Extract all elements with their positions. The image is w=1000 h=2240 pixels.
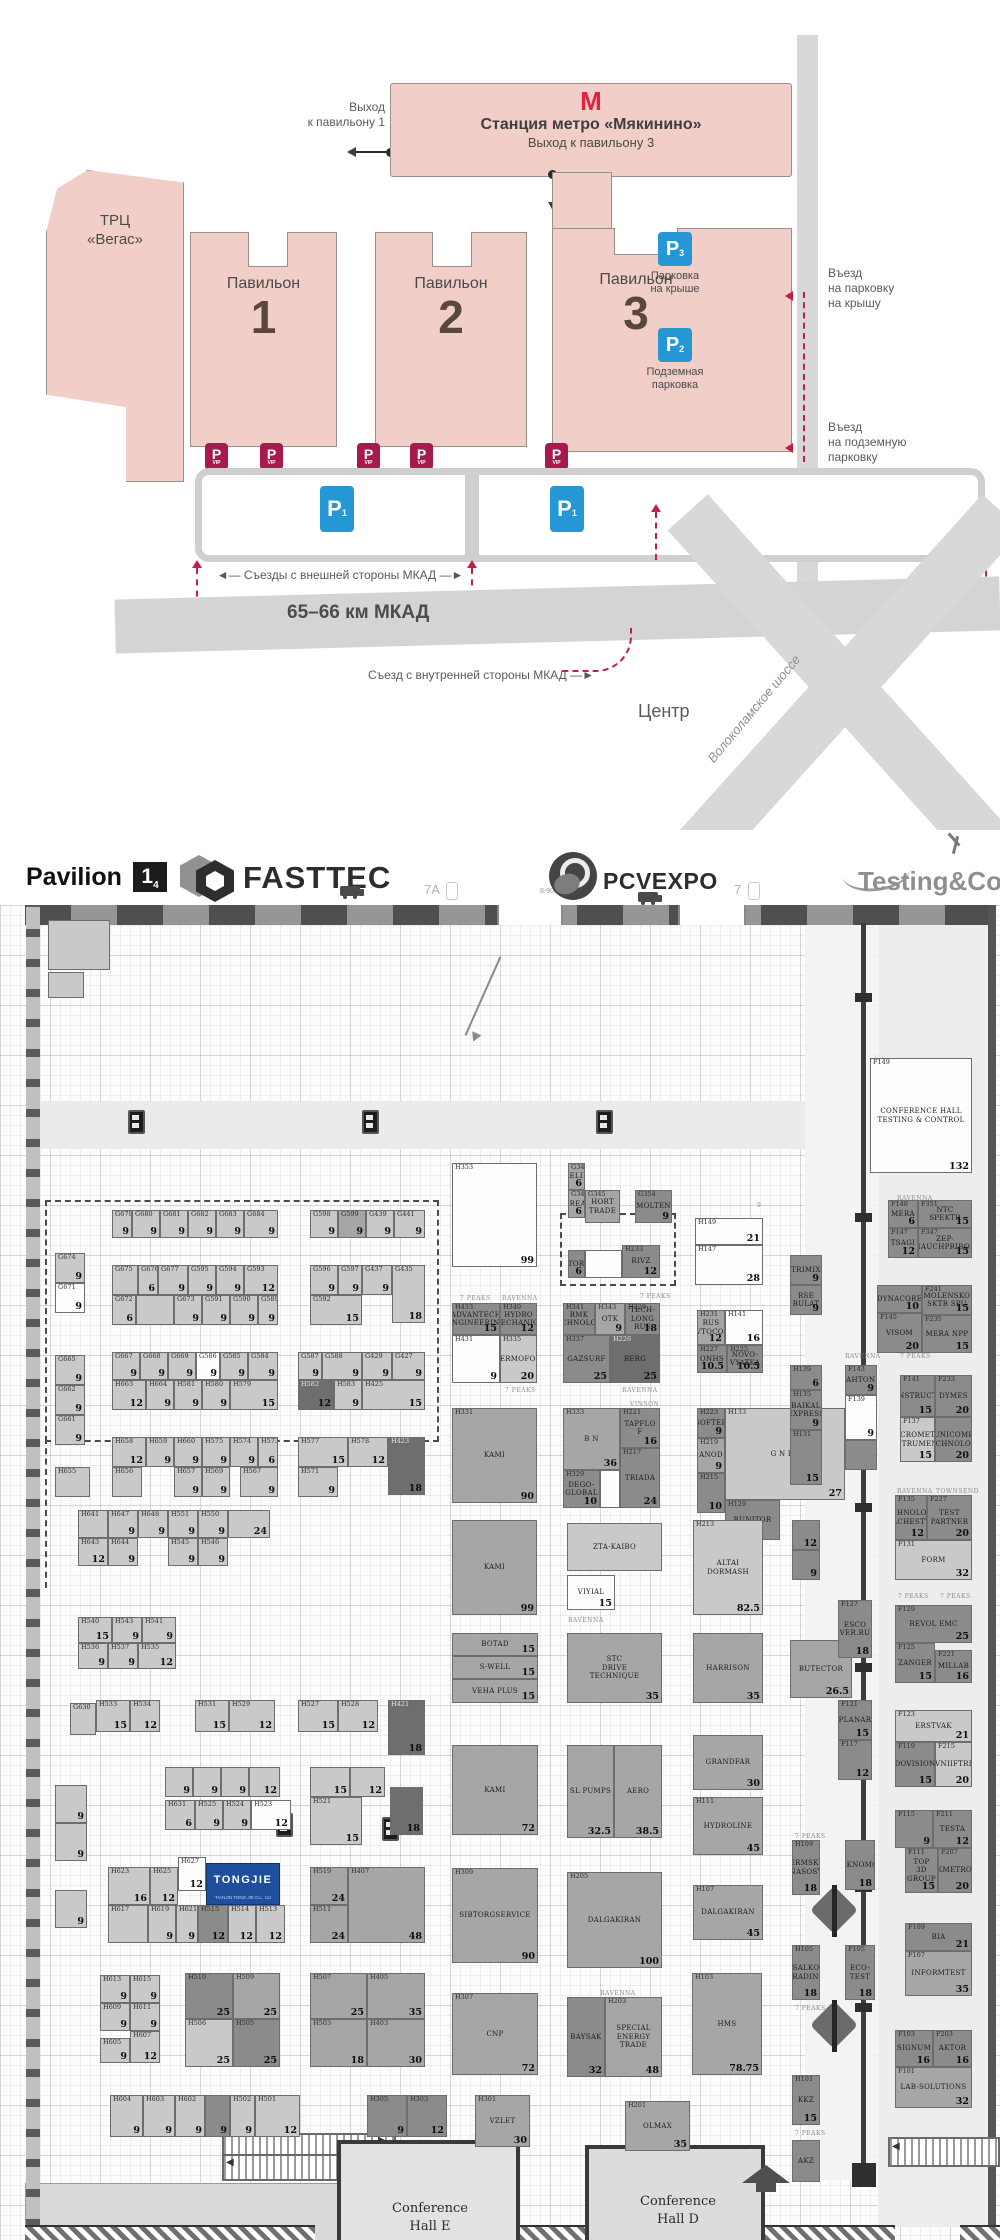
booth: BAYSAK32 [567, 1997, 605, 2077]
booth-H613: H6139 [100, 1975, 130, 2003]
booth-H545: H5459 [168, 1538, 198, 1566]
booth: KAMI72 [452, 1745, 538, 1835]
booth-H423: H42318 [388, 1437, 425, 1495]
ramp-arrow-head [467, 560, 477, 568]
booth-H525: H5259 [195, 1800, 223, 1830]
booth: SL PUMPS32.5 [567, 1745, 614, 1838]
booth: RSE BULAT9 [790, 1285, 822, 1315]
booth-H307: H307CNP72 [452, 1993, 538, 2075]
booth-F139: F1399 [845, 1395, 877, 1440]
inner-exit-curve [560, 628, 632, 672]
gate-opening [497, 905, 563, 925]
zone-dashed-line [45, 1438, 47, 1588]
booth-F137: F137MICROMETRY INSTRUMENTS15 [900, 1417, 935, 1462]
booth-H581: H5819 [174, 1380, 202, 1410]
booth-G591: G5919 [202, 1295, 230, 1325]
aisle-label: 7 PEAKS [898, 1593, 929, 1600]
booth-G669: G6699 [168, 1352, 196, 1380]
booth-G681: G6819 [160, 1210, 188, 1238]
booth-H546: H5469 [198, 1538, 228, 1566]
booth-H623: H62316 [108, 1867, 150, 1905]
pavilion-header-label: Pavilion [26, 863, 122, 892]
booth-H625: H62512 [150, 1867, 178, 1905]
booth-H535: H53512 [138, 1643, 176, 1669]
exit-pavilion1-label: Выход к павильону 1 [255, 100, 385, 130]
booth-G589: G5899 [258, 1295, 278, 1325]
booth-G595: G5959 [188, 1265, 216, 1295]
parking-vip-icon: PVIP [357, 443, 380, 470]
bottom-wall-hatch [25, 2225, 315, 2240]
booth-H540: H54015 [78, 1617, 112, 1643]
booth-F105: F105ECO- TEST18 [845, 1945, 875, 2000]
booth-F125: F125ZANGER15 [895, 1643, 935, 1683]
aisle-label: 7 PEAKS [940, 1593, 971, 1600]
booth-H567: H5679 [240, 1467, 278, 1497]
booth-H341: H341RMK TECHNOLOGY [563, 1303, 595, 1335]
booth-H205: H205DALGAKIRAN100 [567, 1872, 662, 1968]
corridor-node [855, 1213, 872, 1222]
parking-vip-icon: PVIP [205, 443, 228, 470]
booth-F233: F233DYMES20 [935, 1375, 972, 1417]
booth-G630: G630 [70, 1703, 96, 1735]
booth-H223: H223SOFTER9 [697, 1408, 725, 1438]
booth-G682: G6829 [188, 1210, 216, 1238]
booth: UNICOMP TECHNOLOGY20 [935, 1417, 972, 1462]
booth-G672: G6726 [112, 1295, 136, 1325]
booth-H226: H226BERG25 [610, 1335, 660, 1383]
bottom-wall-hatch [520, 2225, 585, 2240]
booth-H403: H40330 [367, 2019, 425, 2067]
booth-F351: F351NTC SPEKTR15 [918, 1200, 972, 1228]
booth-H578: H57812 [348, 1437, 388, 1467]
conference-hall-d-label: Conference Hall D [608, 2193, 748, 2228]
booth-H627: H62712 [178, 1857, 206, 1891]
escalator-icon [832, 1885, 837, 1937]
booth-F127: F127ESCO VER.RU18 [838, 1600, 872, 1658]
inner-exit-label: Съезд с внутренней стороны МКАД —► [368, 668, 594, 683]
aisle-label: 7 PEAKS [795, 1833, 826, 1840]
booth-H534: H53412 [130, 1700, 160, 1732]
ramp-arrow [655, 512, 657, 560]
ramp-arrow-head [192, 560, 202, 568]
booth-H103: H103HMS78.75 [692, 1973, 762, 2075]
booth-H602: H6029 [175, 2095, 205, 2137]
parking-p1-icon: P1 [550, 486, 584, 532]
pavilion-2-notch [432, 232, 472, 267]
entry-underground-arrow-icon [785, 443, 793, 453]
booth-F347: F347ZEP-NAUCHPRIBOR15 [918, 1228, 972, 1258]
booth-F101: F101LAB-SOLUTIONS32 [895, 2067, 972, 2108]
booth-F241: F241SMOLENSKOE SKTB SPU15 [922, 1285, 972, 1315]
booth-G599: G5999 [338, 1210, 366, 1238]
booth-G584: G5849 [248, 1352, 278, 1380]
booth-G665: G6659 [55, 1355, 85, 1385]
booth-H527: H52715 [298, 1700, 338, 1732]
access-map: Выход к павильону 1 М Станция метро «Мяк… [0, 0, 1000, 830]
mkad-label: 65–66 км МКАД [287, 602, 429, 624]
booth-H425: H42515 [362, 1380, 425, 1410]
booth-H433: H433ADVANTECH ENGINEERING15 [452, 1303, 500, 1335]
station-exit-label: Выход к павильону 3 [391, 135, 791, 150]
hall-entry-arrow [742, 2165, 790, 2183]
booth-H656: H656 [112, 1467, 142, 1497]
booth-G592: G59215 [310, 1295, 362, 1325]
booth-H660: H6609 [174, 1437, 202, 1467]
booth-H519: H51924 [310, 1867, 348, 1905]
aisle-label: RAVENNA [897, 1195, 933, 1202]
booth-F149: F149CONFERENCE HALL TESTING & CONTROL132 [870, 1058, 972, 1173]
booth-H514: H51412 [228, 1905, 256, 1943]
booth-H353: H35399 [452, 1163, 537, 1267]
booth-H131: H13115 [790, 1430, 822, 1485]
booth: 9 [55, 1890, 87, 1928]
booth-G596: G5969 [310, 1265, 338, 1295]
booth-H139: H1396 [790, 1365, 822, 1390]
booth-H617: H617 [108, 1905, 148, 1943]
booth-H583: H5839 [334, 1380, 362, 1410]
pavilion-1-number: 1 [191, 293, 336, 341]
aisle-label: 9 [757, 1202, 761, 1209]
booth: 18 [390, 1787, 423, 1835]
booth [136, 1295, 174, 1325]
forklift-icon [596, 1110, 613, 1134]
booth-G668: G6689 [140, 1352, 168, 1380]
booth-G598: G5989 [310, 1210, 338, 1238]
booth-H580: H5809 [202, 1380, 230, 1410]
parking-vip-icon: PVIP [545, 443, 568, 470]
booth-H221: H221TAPFLO F16 [620, 1408, 660, 1448]
booth-H577: H57715 [298, 1437, 348, 1467]
booth-H501: H50112 [255, 2095, 300, 2137]
booth-G677: G6779 [158, 1265, 188, 1295]
booth-G667: G6679 [112, 1352, 140, 1380]
parking-lot-divider [465, 468, 479, 562]
booth-F111: F111TOP 3D GROUP15 [905, 1848, 938, 1893]
booth-G354: G354MOLTEN9 [635, 1190, 672, 1223]
booth-F107: F107INFORMTEST35 [905, 1951, 972, 1996]
booth-G676: G6766 [138, 1265, 158, 1295]
booth-H141: H14116 [725, 1310, 763, 1345]
booth-H225: H225NOVO- VYATKA10.5 [727, 1345, 763, 1373]
booth-H421: H42118 [388, 1700, 425, 1755]
booth: 9 [55, 1823, 87, 1861]
booth-F131: F131FORM32 [895, 1540, 972, 1580]
booth-H575: H5759 [202, 1437, 230, 1467]
booth-G674: G6749 [55, 1253, 85, 1283]
booth-G439: G4399 [366, 1210, 394, 1238]
gate-7a-label: 7A [424, 882, 440, 897]
entry-roof-arrow-icon [785, 291, 793, 301]
booth: AKZ [792, 2140, 820, 2182]
testing-logo-text: Testing&Co [858, 866, 1000, 897]
left-wall [26, 905, 40, 2227]
booth-G435: G43518 [392, 1265, 425, 1323]
booth: STC DRIVE TECHNIQUE35 [567, 1633, 662, 1703]
booth-H509: H50925 [233, 1973, 280, 2019]
corridor-end-node [852, 2163, 876, 2187]
booth-G588: G5889 [322, 1352, 362, 1380]
booth-H550: H5509 [198, 1510, 228, 1538]
forklift-icon [128, 1110, 145, 1134]
booth-H105: H105SALKO TRADING18 [792, 1945, 820, 2000]
booth-H657: H6579 [174, 1467, 202, 1497]
booth-H664: H6649 [146, 1380, 174, 1410]
fasttec-logo-text: FASTTEC [243, 860, 391, 896]
aisle-label: TOWNSEND [936, 1488, 979, 1495]
booth-H511: H51124 [310, 1905, 348, 1943]
booth-H217: H217TRIADA24 [620, 1448, 660, 1508]
booth-H405: H40535 [367, 1973, 425, 2019]
booth-F109: F109BIA21 [905, 1923, 972, 1951]
booth: TONGJIETIANJIN TONG JIE Co., Ltd [206, 1863, 280, 1905]
booth-F227: F227TEST PARTNER20 [927, 1495, 972, 1540]
booth-H607: H60712 [130, 2031, 160, 2063]
conference-hall-e-label: Conference Hall E [360, 2200, 500, 2235]
outer-exits-label: ◄— Съезды с внешней стороны МКАД —► [190, 568, 490, 583]
booth-H521: H52115 [310, 1797, 362, 1845]
booth-H609: H6099 [100, 2003, 130, 2031]
gate-7a-marker [446, 882, 458, 900]
booth-H644: H6449 [108, 1538, 138, 1566]
aisle-label: 7 PEAKS [640, 1293, 671, 1300]
booth-H149: H14921 [695, 1218, 763, 1245]
booth-F121: F121PLANAR15 [838, 1700, 872, 1740]
booth-H135: H135BAIKAL EXPRESS9 [790, 1390, 822, 1430]
station-title: Станция метро «Мякинино» [391, 116, 791, 134]
booth: TEKNOMOR18 [845, 1840, 875, 1890]
booth: ZTA-KAIBO [567, 1523, 662, 1571]
parking-p1-icon: P1 [320, 486, 354, 532]
booth-H213: H213ALTAI DORMASH82.5 [693, 1520, 763, 1615]
booth-H648: H6489 [138, 1510, 168, 1538]
metro-station-box: М Станция метро «Мякинино» Выход к павил… [390, 83, 792, 177]
exit-arrow-line [355, 151, 389, 153]
stairs-arrow: ◀ [226, 2157, 234, 2168]
plan-header: Pavilion 14 FASTTEC 7A 8-900 cm PCVEXPO … [0, 830, 1000, 905]
booth-G429: G4299 [362, 1352, 392, 1380]
booth: TRIMIX9 [790, 1255, 822, 1285]
booth-G593: G59312 [244, 1265, 278, 1295]
booth-H507: H50725 [310, 1973, 367, 2019]
booth [845, 1440, 877, 1470]
booth-G679: G6799 [112, 1210, 132, 1238]
booth-H615: H6159 [130, 1975, 160, 2003]
aisle-label: 7 PEAKS [460, 1295, 491, 1302]
booth-H510: H51025 [185, 1973, 233, 2019]
booth-F123: F123ERSTVAK21 [895, 1710, 972, 1742]
booth-G684: G6849 [244, 1210, 278, 1238]
corridor-node [855, 1663, 872, 1672]
booth-H305: H3059 [367, 2095, 407, 2137]
booth: VEHA PLUS15 [452, 1679, 538, 1703]
booth-G349: G349GELIN6 [568, 1163, 585, 1190]
booth: BOTAD15 [452, 1633, 538, 1656]
booth: S-WELL15 [452, 1656, 538, 1679]
booth-H349: H349HYDRO MECHANICS12 [500, 1303, 537, 1335]
ramp-arrow-head [651, 504, 661, 512]
booth-H582: H58212 [298, 1380, 334, 1410]
booth-F207: F207AKMETRON20 [938, 1848, 972, 1893]
entry-roof-label: Въезд на парковку на крышу [828, 266, 894, 311]
booth-G661: G6619 [55, 1415, 85, 1445]
booth-H523: H52312 [251, 1800, 291, 1830]
booth: 9 [205, 2095, 230, 2137]
right-wall [988, 905, 996, 2240]
gate-7-marker [748, 882, 760, 900]
page: Выход к павильону 1 М Станция метро «Мяк… [0, 0, 1000, 2240]
booth-H513: H51312 [256, 1905, 285, 1943]
booth: 9 [165, 1767, 193, 1797]
vegas-mall-label: ТРЦ «Вегас» [60, 212, 170, 250]
booth-H343: H343OTK9 [595, 1303, 625, 1335]
booth-F115: F1159 [895, 1810, 933, 1848]
parking-p3-caption: Парковка на крыше [628, 270, 722, 296]
booth-H215: H21510 [697, 1473, 725, 1513]
booth-F148: F148MERA6 [888, 1200, 918, 1228]
booth-H333: H333B N36 [563, 1408, 620, 1470]
booth-H109: H109PERMSKIE NASOSY18 [792, 1840, 820, 1895]
metro-m-icon: М [391, 88, 791, 114]
booth-H335: H335THERMOFORM20 [500, 1335, 537, 1383]
booth-H147: H14728 [695, 1245, 763, 1285]
parking-p2-icon: P2 [658, 328, 692, 362]
booth-G347: G347STREAM6 [568, 1190, 585, 1218]
booth: 12 [792, 1520, 820, 1550]
corridor-node [855, 2003, 872, 2012]
booth-H529: H52912 [229, 1700, 275, 1732]
booth: 9 [193, 1767, 221, 1797]
parking-vip-icon: PVIP [410, 443, 433, 470]
corridor-node [855, 993, 872, 1002]
booth-F129: F129REVOL EMC25 [895, 1605, 972, 1643]
booth: DYNACORE10 [877, 1285, 922, 1313]
booth-H619: H6199 [148, 1905, 176, 1943]
aisle-label: RAVENNA [502, 1295, 538, 1302]
booth-H611: H6119 [130, 2003, 160, 2031]
gate-opening [678, 905, 746, 925]
booth-H641: H641 [78, 1510, 108, 1538]
hall-number-badge: 14 [133, 862, 167, 892]
booth-G427: G4279 [392, 1352, 425, 1380]
bottom-wall-hatch [765, 2225, 895, 2240]
escalator-icon [832, 2000, 837, 2052]
booth-F103: F103SIGNUM16 [895, 2030, 933, 2067]
booth: 12 [350, 1767, 385, 1797]
booth-H621: H6219 [176, 1905, 198, 1943]
booth-F147: F147TSAGI12 [888, 1228, 918, 1258]
parking-p3-icon: P3 [658, 232, 692, 266]
booth-H571: H5719 [298, 1467, 338, 1497]
aisle-label: RAVENNA [622, 1387, 658, 1394]
booth-G683: G6839 [216, 1210, 244, 1238]
booth [585, 1250, 622, 1278]
aisle-label: RAVENNA [568, 1617, 604, 1624]
aisle-label: 7 PEAKS [795, 2005, 826, 2012]
booth: AVTOROS6 [568, 1250, 585, 1278]
booth-H537: H5379 [108, 1643, 138, 1669]
booth-H337: H337GAZSURF25 [563, 1335, 610, 1383]
booth-H573: H5736 [258, 1437, 278, 1467]
booth-G680: G6809 [132, 1210, 160, 1238]
booth-H133: H133G N I D27 [725, 1408, 845, 1500]
booth-H543: H5439 [112, 1617, 142, 1643]
booth-H647: H6479 [108, 1510, 138, 1538]
aisle-label: VINSON [630, 1401, 659, 1408]
booth: 9 [221, 1767, 249, 1797]
booth: GRANDFAR30 [693, 1735, 763, 1790]
booth-H643: H64312 [78, 1538, 108, 1566]
booth-H515: H51512 [198, 1905, 228, 1943]
aisle-label: 7 PEAKS [795, 2130, 826, 2137]
booth-H506: H50625 [185, 2019, 233, 2067]
booth-H229: H229TECH- LONG RUS18 [625, 1303, 660, 1335]
booth-H505: H50525 [233, 2019, 280, 2067]
booth-H331: H331KAMI90 [452, 1408, 537, 1503]
booth-G586: G5869 [196, 1352, 220, 1380]
aisle-label: 7 PEAKS [900, 1353, 931, 1360]
aisle-label: RAVENNA [845, 1353, 881, 1360]
booth-H631: H6316 [165, 1800, 195, 1830]
booth: KAMI99 [452, 1520, 537, 1615]
aisle-tint [40, 1101, 880, 1149]
booth [48, 920, 110, 970]
booth-H309: H309SIBTORGSERVICE90 [452, 1868, 538, 1963]
exit-arrow-left-icon [347, 147, 356, 157]
booth-G594: G5949 [216, 1265, 244, 1295]
entry-dash-line [803, 292, 805, 462]
booth: 15 [310, 1767, 350, 1797]
booth-H663: H66312 [112, 1380, 146, 1410]
entrance-arrow [465, 956, 502, 1035]
parking-p2-caption: Подземная парковка [628, 366, 722, 392]
booth-H301: H301VZLET30 [475, 2095, 530, 2147]
booth [600, 1470, 620, 1508]
booth-H574: H5749 [230, 1437, 258, 1467]
parking-vip-icon: PVIP [260, 443, 283, 470]
booth [48, 972, 84, 998]
booth-H107: H107DALGAKIRAN45 [693, 1885, 763, 1940]
booth-H533: H53315 [96, 1700, 130, 1732]
booth-H541: H5419 [142, 1617, 176, 1643]
booth-H528: H52812 [338, 1700, 378, 1732]
booth-H201: H201OLMAX35 [625, 2101, 690, 2151]
booth-H569: H5699 [202, 1467, 230, 1497]
booth-H659: H6599 [146, 1437, 174, 1467]
booth-H111: H111HYDROLINE45 [693, 1797, 763, 1855]
booth-H329: H329DEGO- GLOBAL10 [563, 1470, 600, 1508]
aisle-label: RAVENNA [600, 1990, 636, 1997]
booth-F143: F143LAHTONE9 [845, 1365, 877, 1395]
entry-underground-label: Въезд на подземную парковку [828, 420, 906, 465]
booth-H658: H65812 [112, 1437, 146, 1467]
booth-H531: H53115 [195, 1700, 229, 1732]
stairs [888, 2137, 1000, 2167]
booth-G587: G5879 [298, 1352, 322, 1380]
booth: AERO38.5 [614, 1745, 662, 1838]
booth: HARRISON35 [693, 1633, 763, 1703]
booth-F203: F203AKTOR16 [933, 2030, 972, 2067]
aisle-label: 7 PEAKS [505, 1387, 536, 1394]
hall-entry-arrow-tail [756, 2183, 776, 2192]
booth: 9 [792, 1550, 820, 1580]
booth-H233: H233RIVZ12 [622, 1245, 660, 1278]
pavilion-3-connector [552, 172, 612, 233]
pcvexpo-logo-text: PCVEXPO [603, 868, 718, 895]
gate-7-label: 7 [734, 882, 741, 897]
forklift-icon [362, 1110, 379, 1134]
booth-H219: H219ANOD9 [697, 1438, 725, 1473]
booth-G345: G345HORT TRADE [585, 1190, 620, 1223]
